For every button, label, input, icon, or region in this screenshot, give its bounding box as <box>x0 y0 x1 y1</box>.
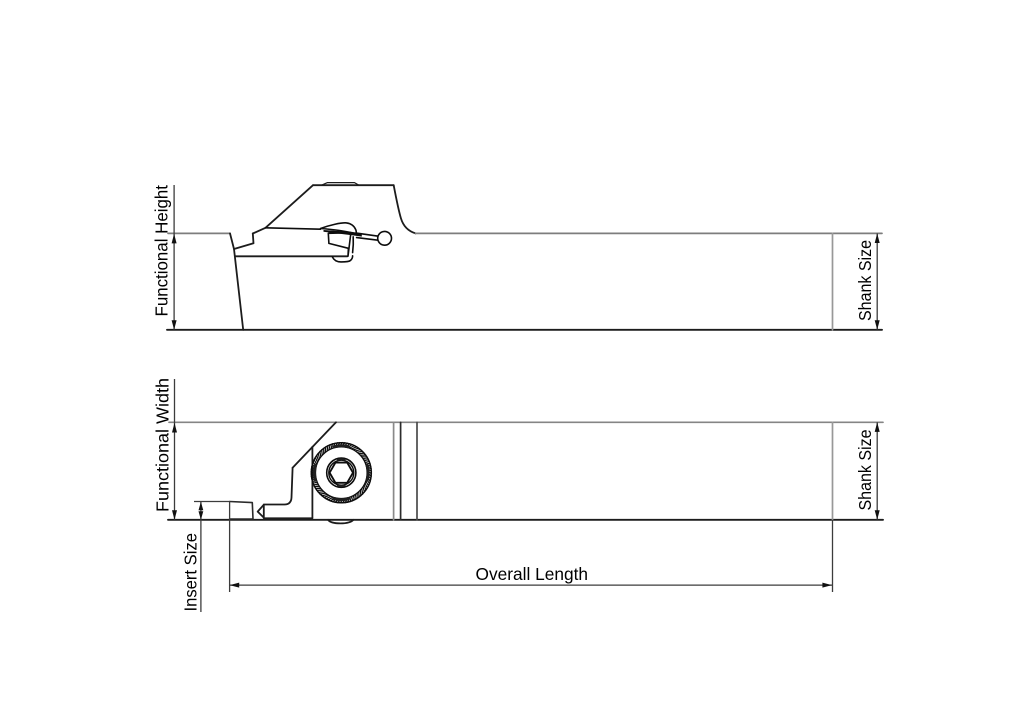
svg-text:Overall Length: Overall Length <box>476 564 589 584</box>
svg-text:Functional Height: Functional Height <box>152 185 172 317</box>
svg-text:Shank Size: Shank Size <box>855 430 875 511</box>
svg-text:Shank Size: Shank Size <box>855 240 875 321</box>
svg-text:Functional Width: Functional Width <box>153 378 173 512</box>
svg-text:Insert Size: Insert Size <box>181 533 201 612</box>
